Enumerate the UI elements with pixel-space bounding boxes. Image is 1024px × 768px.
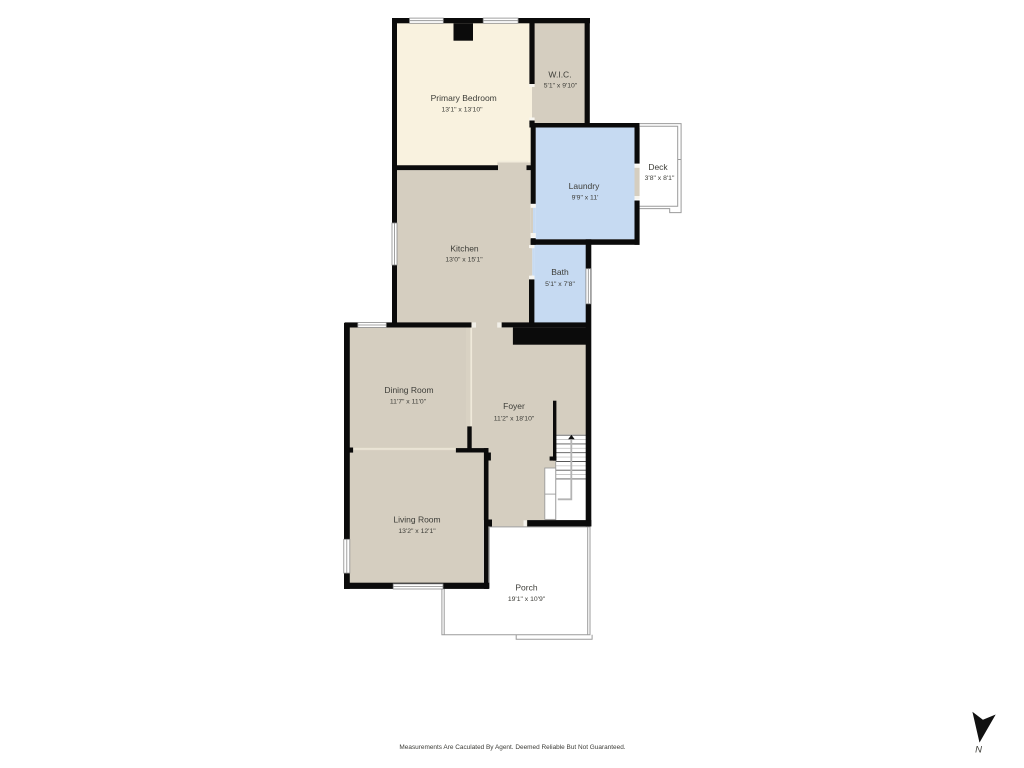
svg-text:5'1" x 9'10": 5'1" x 9'10": [544, 83, 578, 90]
svg-text:Primary Bedroom: Primary Bedroom: [431, 93, 497, 103]
svg-text:Deck: Deck: [648, 162, 668, 172]
svg-text:9'9" x 11': 9'9" x 11': [572, 195, 599, 202]
svg-text:Laundry: Laundry: [569, 181, 600, 191]
svg-text:13'2" x 12'1": 13'2" x 12'1": [398, 528, 436, 535]
svg-text:13'0" x 15'1": 13'0" x 15'1": [445, 257, 483, 264]
svg-text:11'7" x 11'0": 11'7" x 11'0": [390, 399, 427, 406]
svg-text:Dining Room: Dining Room: [384, 385, 433, 395]
svg-text:19'1" x 10'9": 19'1" x 10'9": [508, 596, 546, 603]
svg-text:Foyer: Foyer: [503, 401, 525, 411]
svg-text:Bath: Bath: [551, 267, 569, 277]
svg-text:Living Room: Living Room: [393, 515, 440, 525]
svg-text:11'2" x 18'10": 11'2" x 18'10": [494, 416, 535, 423]
svg-text:Porch: Porch: [515, 583, 537, 593]
svg-text:W.I.C.: W.I.C.: [548, 70, 571, 80]
svg-text:Kitchen: Kitchen: [450, 244, 479, 254]
svg-text:Measurements Are Caculated By: Measurements Are Caculated By Agent. Dee…: [399, 744, 625, 751]
svg-text:13'1" x 13'10": 13'1" x 13'10": [441, 107, 483, 114]
svg-text:N: N: [975, 745, 982, 756]
svg-text:5'1" x 7'8": 5'1" x 7'8": [545, 281, 575, 288]
svg-text:3'8" x 8'1": 3'8" x 8'1": [645, 175, 675, 182]
